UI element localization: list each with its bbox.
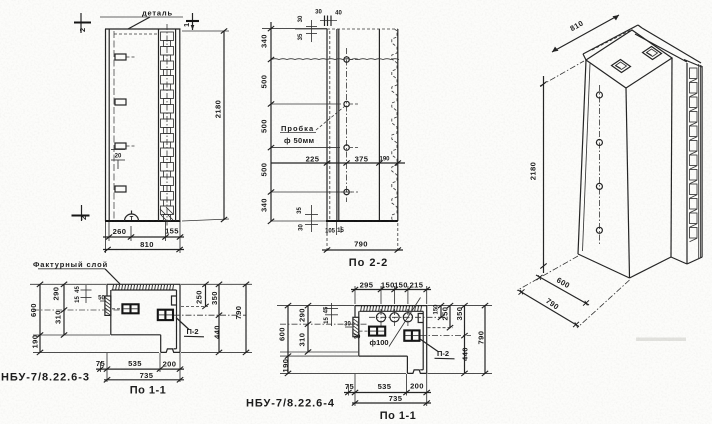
svg-text:45: 45: [324, 306, 330, 313]
svg-text:НБУ-7/8.22.6-3: НБУ-7/8.22.6-3: [1, 372, 90, 384]
svg-text:30: 30: [315, 10, 322, 16]
svg-text:250: 250: [195, 290, 204, 304]
svg-text:225: 225: [306, 155, 320, 164]
svg-text:535: 535: [128, 359, 142, 368]
svg-text:735: 735: [140, 371, 154, 380]
svg-text:ф100: ф100: [370, 338, 389, 347]
svg-text:По 2-2: По 2-2: [349, 257, 389, 269]
svg-text:155: 155: [165, 227, 179, 236]
svg-text:1: 1: [182, 23, 191, 27]
svg-text:Т: Т: [130, 217, 134, 223]
svg-text:310: 310: [54, 310, 63, 324]
svg-text:535: 535: [378, 382, 392, 391]
svg-text:30: 30: [354, 335, 361, 341]
svg-text:20: 20: [115, 154, 122, 160]
svg-text:290: 290: [52, 287, 61, 301]
svg-text:150: 150: [394, 281, 408, 290]
svg-text:30: 30: [299, 224, 305, 231]
svg-text:2: 2: [78, 28, 87, 32]
svg-text:350: 350: [210, 291, 219, 305]
svg-text:735: 735: [389, 394, 403, 403]
svg-text:75: 75: [345, 382, 355, 391]
svg-text:35: 35: [297, 207, 303, 214]
svg-text:деталь: деталь: [142, 9, 173, 18]
svg-text:НБУ-7/8.22.6-4: НБУ-7/8.22.6-4: [246, 398, 335, 410]
svg-text:15: 15: [337, 228, 344, 234]
svg-text:По 1-1: По 1-1: [130, 385, 167, 397]
svg-text:200: 200: [163, 360, 177, 369]
svg-text:600: 600: [29, 303, 38, 317]
svg-text:440: 440: [213, 325, 222, 339]
svg-text:290: 290: [298, 308, 307, 322]
svg-text:2: 2: [79, 216, 88, 220]
svg-text:Фактурный слой: Фактурный слой: [33, 260, 108, 269]
svg-text:500: 500: [260, 119, 269, 133]
svg-text:П-2: П-2: [437, 349, 449, 358]
svg-text:105: 105: [325, 229, 336, 235]
svg-text:15: 15: [324, 317, 330, 324]
svg-text:790: 790: [354, 240, 368, 249]
svg-text:600: 600: [278, 327, 287, 341]
svg-text:790: 790: [477, 331, 486, 345]
svg-text:150: 150: [434, 304, 440, 315]
svg-text:30: 30: [298, 15, 304, 22]
svg-text:45: 45: [75, 286, 81, 293]
svg-text:35: 35: [298, 33, 304, 40]
svg-text:500: 500: [260, 163, 269, 177]
svg-text:2180: 2180: [529, 162, 538, 181]
svg-text:340: 340: [260, 34, 269, 48]
svg-text:75: 75: [96, 359, 106, 368]
svg-text:200: 200: [410, 382, 424, 391]
svg-text:2180: 2180: [214, 100, 223, 119]
svg-text:295: 295: [360, 281, 374, 290]
svg-text:375: 375: [355, 155, 369, 164]
svg-text:Пробка: Пробка: [281, 124, 314, 133]
svg-text:500: 500: [260, 75, 269, 89]
svg-text:440: 440: [461, 347, 470, 361]
svg-text:П-2: П-2: [187, 327, 199, 336]
svg-text:190: 190: [31, 335, 40, 349]
svg-text:40: 40: [335, 11, 342, 17]
svg-text:150: 150: [381, 281, 395, 290]
svg-text:260: 260: [113, 227, 127, 236]
svg-text:350: 350: [455, 307, 464, 321]
svg-text:ф 50мм: ф 50мм: [284, 136, 315, 145]
svg-text:250: 250: [441, 307, 450, 321]
svg-text:190: 190: [281, 359, 290, 373]
svg-text:215: 215: [410, 281, 424, 290]
svg-text:340: 340: [260, 198, 269, 212]
svg-text:310: 310: [298, 333, 307, 347]
svg-text:810: 810: [140, 240, 154, 249]
svg-text:15: 15: [75, 296, 81, 303]
svg-text:По 1-1: По 1-1: [380, 410, 417, 422]
svg-text:190: 190: [379, 157, 390, 163]
svg-text:790: 790: [234, 306, 243, 320]
